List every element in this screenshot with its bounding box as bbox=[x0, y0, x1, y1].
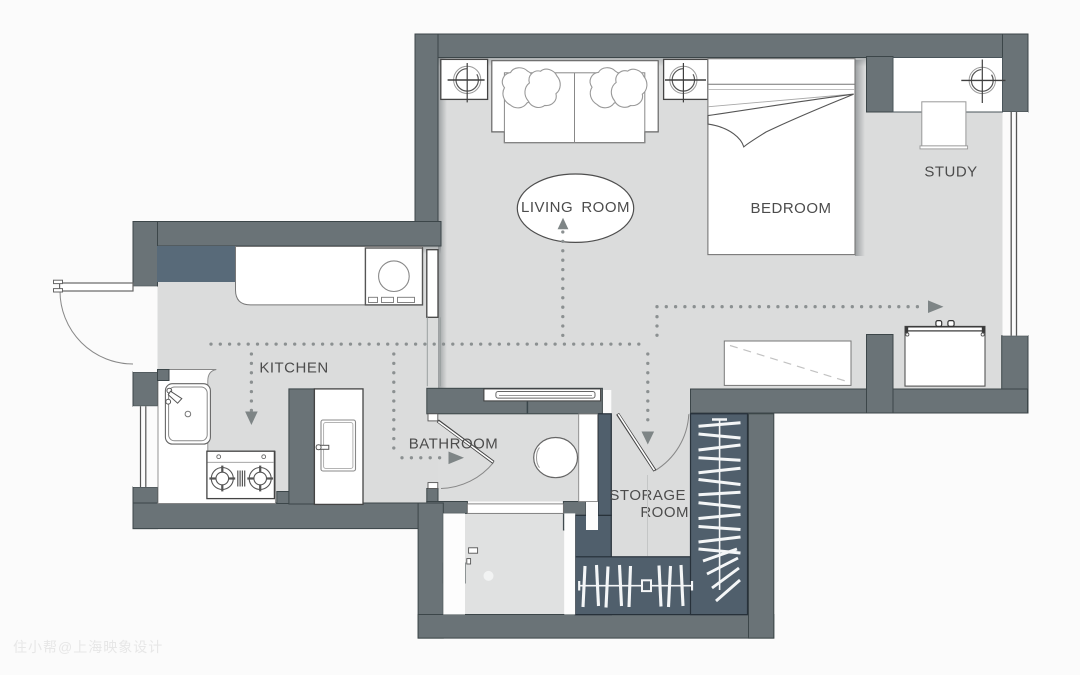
svg-text:BEDROOM: BEDROOM bbox=[750, 200, 831, 217]
svg-text:LIVING ROOM: LIVING ROOM bbox=[521, 199, 630, 216]
svg-text:BATHROOM: BATHROOM bbox=[409, 436, 499, 453]
svg-text:KITCHEN: KITCHEN bbox=[259, 360, 328, 377]
svg-text:STUDY: STUDY bbox=[924, 164, 977, 181]
